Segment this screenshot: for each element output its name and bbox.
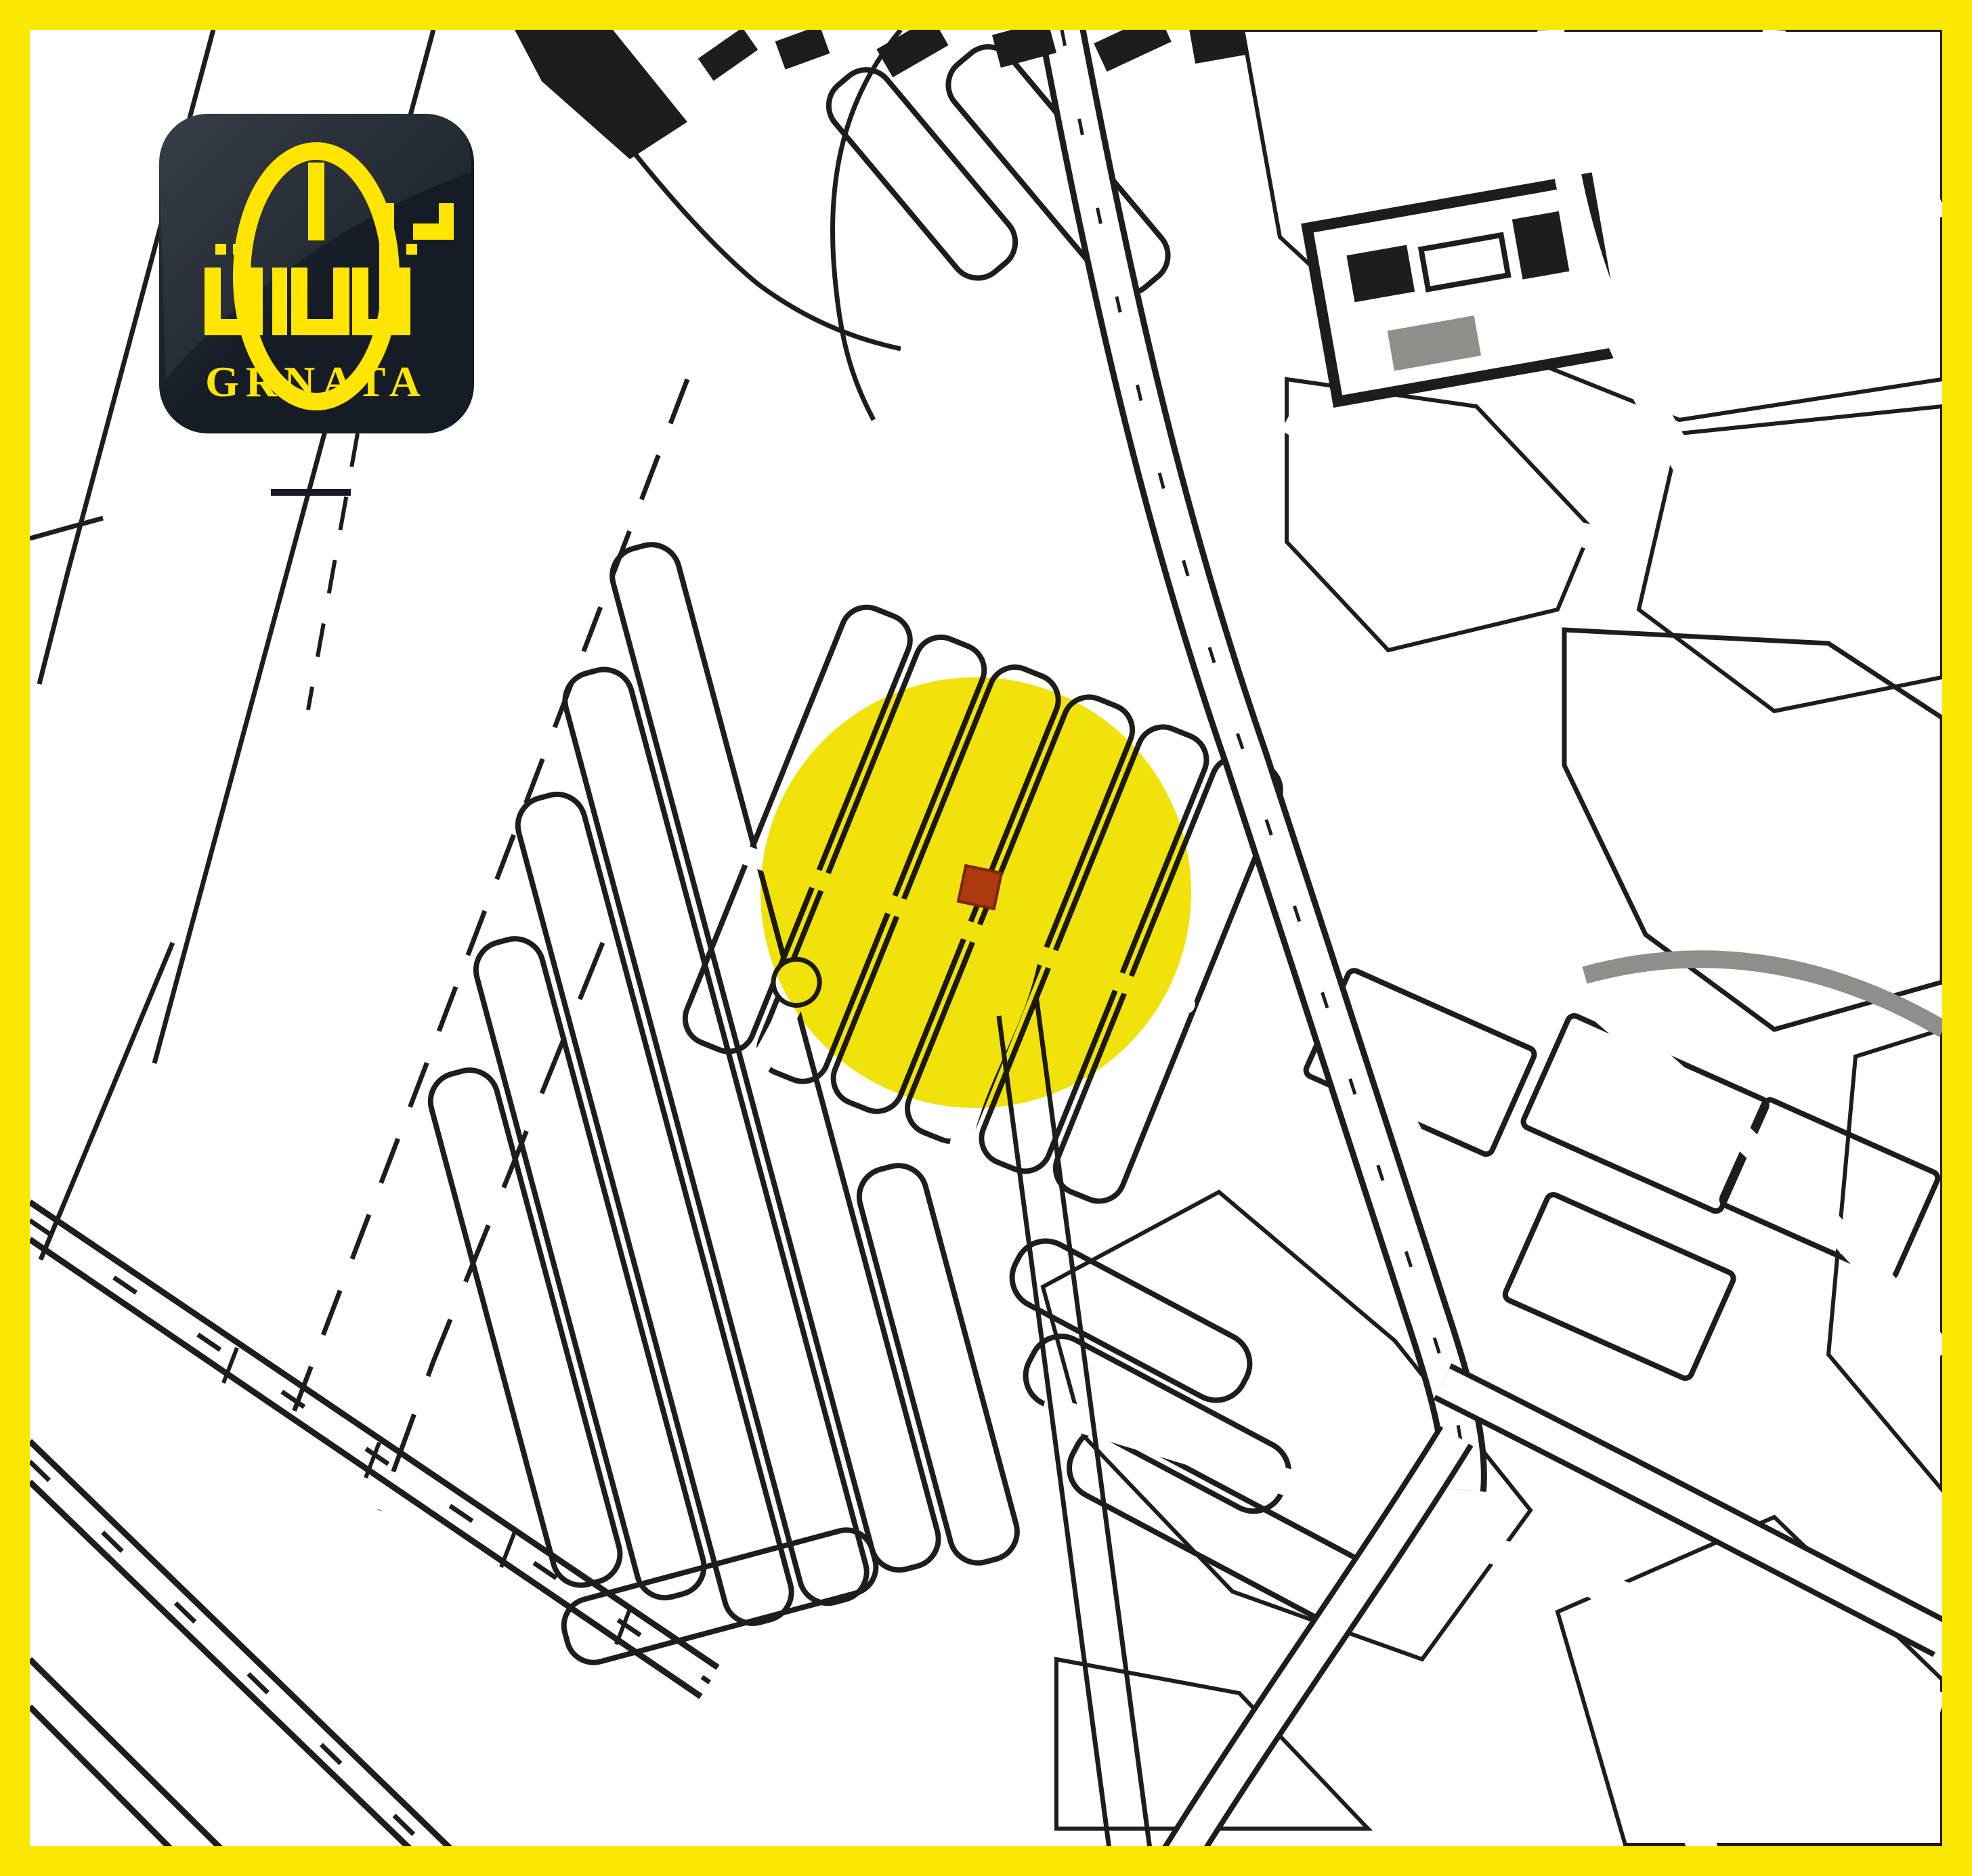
brand-latin-wordmark: GRNATA <box>205 358 427 406</box>
logo-underline-dash <box>271 489 351 496</box>
city-plan-map: GRNATA <box>0 0 1972 1876</box>
poster: GRNATA <box>0 0 1972 1876</box>
location-marker <box>958 866 1002 909</box>
